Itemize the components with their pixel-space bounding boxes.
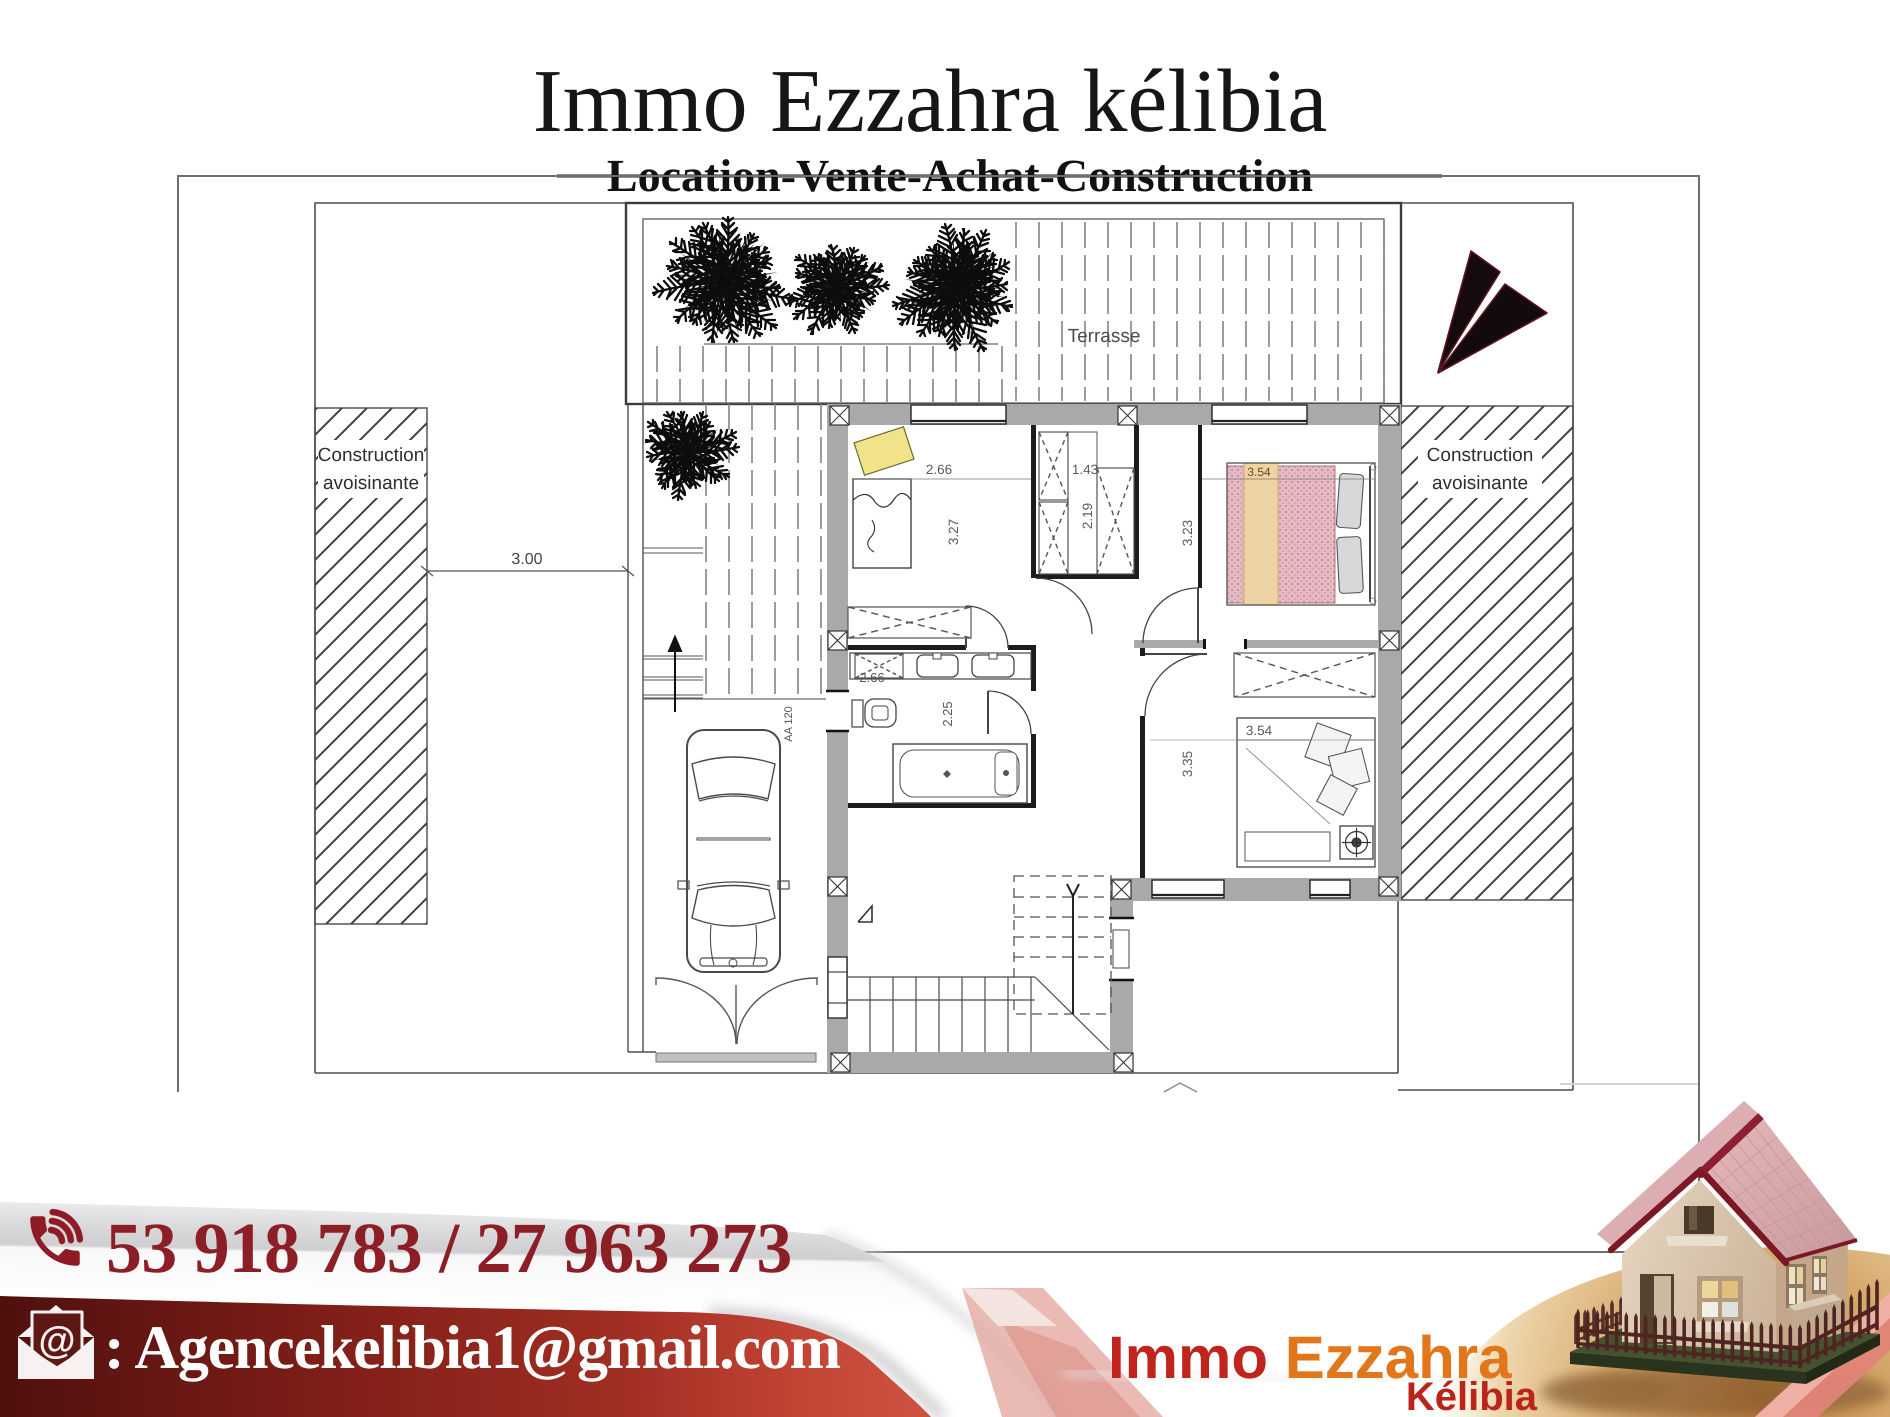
svg-text:3.54: 3.54 bbox=[1247, 465, 1271, 479]
svg-text:Construction: Construction bbox=[1427, 445, 1534, 466]
svg-text:2.25: 2.25 bbox=[940, 701, 955, 726]
svg-text:avoisinante: avoisinante bbox=[1432, 473, 1528, 494]
svg-text:3.27: 3.27 bbox=[946, 519, 961, 545]
svg-text:3.23: 3.23 bbox=[1180, 520, 1195, 546]
svg-text:Immo Ezzahra kélibia: Immo Ezzahra kélibia bbox=[533, 52, 1328, 151]
svg-text:Kélibia: Kélibia bbox=[1406, 1375, 1538, 1417]
svg-text:3.35: 3.35 bbox=[1180, 751, 1195, 777]
svg-text:53 918 783 / 27 963 273: 53 918 783 / 27 963 273 bbox=[106, 1208, 792, 1288]
svg-text:3.54: 3.54 bbox=[1246, 723, 1273, 738]
svg-text:1.43: 1.43 bbox=[1072, 462, 1098, 477]
svg-text:avoisinante: avoisinante bbox=[323, 473, 419, 494]
svg-text:@: @ bbox=[38, 1320, 75, 1362]
svg-text:2.66: 2.66 bbox=[926, 462, 952, 477]
svg-text:Terrasse: Terrasse bbox=[1068, 326, 1141, 347]
svg-text:Construction: Construction bbox=[318, 445, 425, 466]
svg-text:AA 120: AA 120 bbox=[783, 706, 795, 741]
svg-text:3.00: 3.00 bbox=[511, 551, 542, 568]
svg-text:: Agencekelibia1@gmail.com: : Agencekelibia1@gmail.com bbox=[104, 1314, 840, 1382]
svg-text:2.19: 2.19 bbox=[1080, 503, 1095, 529]
svg-text:2.66: 2.66 bbox=[859, 670, 884, 685]
